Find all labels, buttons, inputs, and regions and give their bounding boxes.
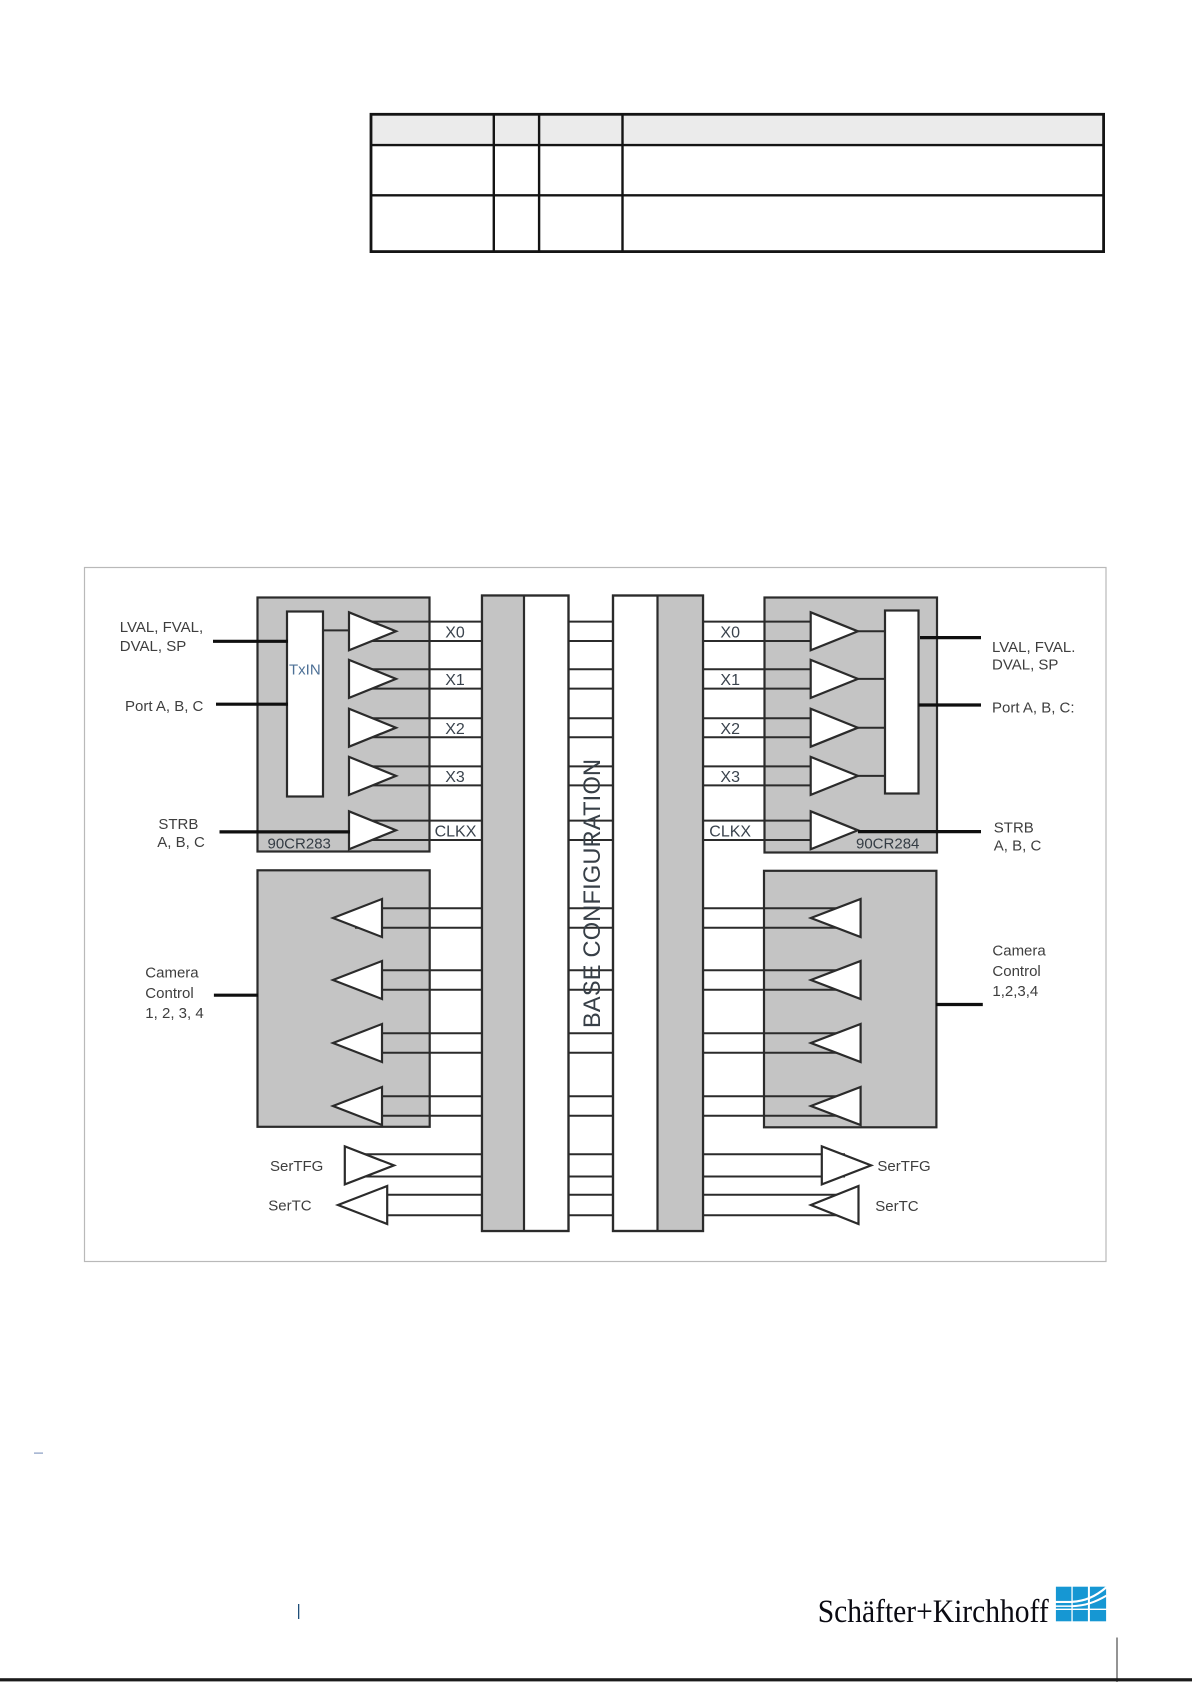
svg-text:Camera: Camera — [145, 965, 199, 982]
svg-text:X1: X1 — [720, 672, 740, 689]
svg-text:SerTC: SerTC — [268, 1198, 312, 1215]
svg-text:X1: X1 — [445, 672, 465, 689]
svg-text:Control: Control — [992, 963, 1040, 980]
svg-text:LVAL, FVAL.: LVAL, FVAL. — [992, 639, 1075, 656]
svg-text:1, 2, 3, 4: 1, 2, 3, 4 — [145, 1005, 203, 1022]
svg-text:TxIN: TxIN — [289, 662, 321, 679]
svg-text:CLKX: CLKX — [435, 824, 477, 841]
svg-text:90CR283: 90CR283 — [268, 836, 331, 853]
svg-text:BASE CONFIGURATION: BASE CONFIGURATION — [580, 759, 606, 1028]
svg-text:SerTC: SerTC — [875, 1198, 919, 1215]
svg-text:Port A, B, C: Port A, B, C — [125, 698, 204, 715]
svg-text:A, B, C: A, B, C — [157, 834, 205, 851]
svg-text:X2: X2 — [445, 721, 465, 738]
svg-text:DVAL, SP: DVAL, SP — [992, 657, 1058, 674]
svg-text:X0: X0 — [445, 625, 465, 642]
svg-text:Schäfter+Kirchhoff: Schäfter+Kirchhoff — [818, 1594, 1049, 1630]
svg-text:90CR284: 90CR284 — [856, 836, 919, 853]
svg-text:DVAL, SP: DVAL, SP — [120, 638, 186, 655]
svg-text:X2: X2 — [720, 721, 740, 738]
svg-text:STRB: STRB — [994, 819, 1034, 836]
svg-text:X3: X3 — [720, 769, 740, 786]
svg-text:Camera: Camera — [992, 942, 1046, 959]
svg-text:Control: Control — [145, 985, 193, 1002]
svg-text:SerTFG: SerTFG — [270, 1158, 323, 1175]
svg-text:A, B, C: A, B, C — [994, 837, 1042, 854]
svg-text:Port A, B, C:: Port A, B, C: — [992, 700, 1075, 717]
svg-text:LVAL, FVAL,: LVAL, FVAL, — [120, 619, 203, 636]
svg-text:X0: X0 — [720, 625, 740, 642]
svg-text:X3: X3 — [445, 769, 465, 786]
svg-text:CLKX: CLKX — [709, 824, 751, 841]
svg-text:SerTFG: SerTFG — [877, 1158, 930, 1175]
svg-text:1,2,3,4: 1,2,3,4 — [992, 983, 1038, 1000]
svg-text:STRB: STRB — [158, 816, 198, 833]
